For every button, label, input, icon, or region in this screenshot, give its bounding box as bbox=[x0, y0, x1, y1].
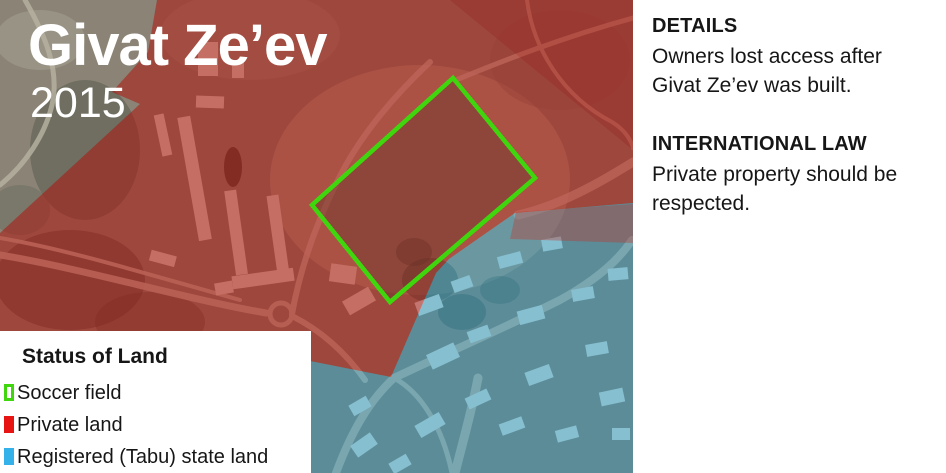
private-land-swatch-icon bbox=[4, 416, 14, 433]
map-area: Givat Ze’ev 2015 Status of Land Soccer f… bbox=[0, 0, 633, 473]
details-body: Owners lost access after Givat Ze’ev was… bbox=[652, 42, 900, 100]
legend-item-soccer-field: Soccer field bbox=[4, 384, 311, 401]
info-section-details: DETAILS Owners lost access after Givat Z… bbox=[652, 13, 946, 100]
legend: Status of Land Soccer field Private land… bbox=[0, 331, 311, 473]
legend-title: Status of Land bbox=[22, 344, 311, 370]
title-block: Givat Ze’ev 2015 bbox=[28, 14, 326, 125]
info-section-international-law: INTERNATIONAL LAW Private property shoul… bbox=[652, 131, 946, 218]
map-year: 2015 bbox=[30, 82, 326, 125]
details-heading: DETAILS bbox=[652, 13, 946, 39]
legend-item-label: Registered (Tabu) state land bbox=[17, 447, 268, 467]
legend-item-private-land: Private land bbox=[4, 416, 311, 433]
legend-items: Soccer field Private land Registered (Ta… bbox=[0, 384, 311, 465]
soccer-field-swatch-icon bbox=[4, 384, 14, 401]
legend-item-label: Private land bbox=[17, 415, 123, 435]
international-law-heading: INTERNATIONAL LAW bbox=[652, 131, 946, 157]
state-land-swatch-icon bbox=[4, 448, 14, 465]
info-panel: DETAILS Owners lost access after Givat Z… bbox=[633, 0, 946, 473]
page-title: Givat Ze’ev bbox=[28, 14, 326, 78]
legend-item-label: Soccer field bbox=[17, 383, 122, 403]
land-status-infographic: Givat Ze’ev 2015 Status of Land Soccer f… bbox=[0, 0, 946, 473]
international-law-body: Private property should be respected. bbox=[652, 160, 900, 218]
legend-item-state-land: Registered (Tabu) state land bbox=[4, 448, 311, 465]
